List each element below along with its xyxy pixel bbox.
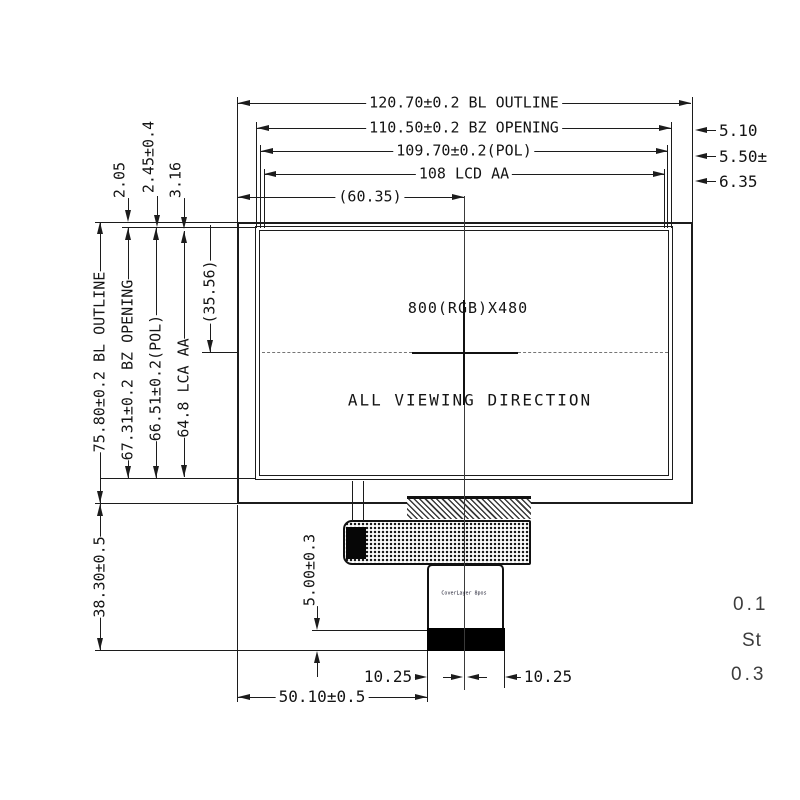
arrowhead [695,178,707,184]
arrowhead [695,127,707,133]
arrowhead [97,222,103,234]
dim-line [157,196,158,216]
arrowhead [125,466,131,478]
extension-line [667,145,668,228]
extension-line [95,222,237,223]
dim-top-offset-2-label: 2.45±0.4 [139,121,160,193]
clipped-note-3: 0.3 [731,664,766,686]
extension-line [237,505,238,702]
dim-connector-depth-label: 5.00±0.3 [300,534,321,606]
arrowhead [695,153,707,159]
arrowhead [415,674,427,680]
fpc-tail-tab [427,564,504,630]
dim-pol-height-label: 66.51±0.2(POL) [146,315,167,441]
dim-half-height-label: (35.56) [200,260,221,323]
arrowhead [181,465,187,477]
dim-lcd-aa-width-label: 108 LCD AA [416,167,512,182]
dim-top-offset-1-label: 2.05 [110,162,131,198]
dim-half-width-label: (60.35) [335,190,404,205]
dim-line [317,663,318,677]
arrowhead [314,651,320,663]
extension-line [504,651,505,688]
dim-line [707,130,716,131]
arrowhead [264,171,276,177]
fpc-hatch-strip [407,496,531,519]
fpc-wire-line [363,481,364,521]
dim-1025-right-label: 10.25 [521,669,575,685]
drawing-canvas: 120.70±0.2 BL OUTLINE 110.50±0.2 BZ OPEN… [0,0,800,800]
dim-line [707,156,716,157]
arrowhead [125,228,131,240]
arrowhead [238,694,250,700]
dim-top-offset-3-label: 3.16 [166,162,187,198]
dim-bl-outline-height-label: 75.80±0.2 BL OUTLINE [90,272,111,453]
arrowhead [314,618,320,630]
dim-pol-width-label: 109.70±0.2(POL) [393,144,534,159]
dim-bottom-width-label: 50.10±0.5 [276,689,369,705]
extension-line [692,97,693,222]
clipped-note-2: St [742,630,762,652]
arrowhead [238,194,250,200]
arrowhead [467,674,479,680]
panel-resolution-text: 800(RGB)X480 [408,299,528,317]
extension-line [260,145,261,228]
extension-line [264,169,265,228]
arrowhead [97,638,103,650]
arrowhead [679,100,691,106]
viewing-direction-text: ALL VIEWING DIRECTION [348,391,592,410]
arrowhead [505,674,517,680]
dim-right-2-label: 5.50± [719,149,767,165]
extension-line [95,503,237,504]
dim-lca-aa-height-label: 64.8 LCA AA [174,338,195,437]
arrowhead [97,491,103,503]
arrowhead [181,217,187,229]
extension-line [100,478,256,479]
arrowhead [181,231,187,243]
extension-line [202,352,238,353]
extension-line [312,630,427,631]
dim-bz-opening-width-label: 110.50±0.2 BZ OPENING [366,121,562,136]
fpc-end-black-bar [427,628,505,651]
dim-right-1-label: 5.10 [719,123,758,139]
horizontal-centerline [262,352,412,353]
center-cross-v [463,300,465,405]
fpc-connector-block [346,527,366,559]
arrowhead [97,504,103,516]
dim-line [184,196,185,218]
arrowhead [154,215,160,227]
arrowhead [659,125,671,131]
extension-line [237,97,238,222]
arrowhead [125,210,131,222]
extension-line [95,650,427,651]
arrowhead [451,674,463,680]
dim-bz-opening-height-label: 67.31±0.2 BZ OPENING [118,280,139,461]
dim-bottom-total-label: 38.30±0.5 [90,536,111,617]
extension-line [427,651,428,702]
vertical-centerline [464,196,465,690]
arrowhead [153,228,159,240]
arrowhead [415,694,427,700]
arrowhead [656,148,668,154]
fpc-body [343,520,531,565]
arrowhead [452,194,464,200]
arrowhead [207,340,213,352]
arrowhead [153,466,159,478]
extension-line [664,169,665,228]
dim-line [707,181,716,182]
dim-1025-left-label: 10.25 [361,669,415,685]
extension-line [256,122,257,228]
arrowhead [238,100,250,106]
center-cross-h [412,352,518,354]
dim-line [128,196,129,211]
dim-line [478,677,487,678]
extension-line [122,227,256,228]
extension-line [671,122,672,228]
horizontal-centerline [518,352,668,353]
dim-bl-outline-width-label: 120.70±0.2 BL OUTLINE [366,96,562,111]
arrowhead [261,148,273,154]
fpc-wire-line [352,481,353,521]
clipped-note-1: 0.1 [733,594,768,616]
arrowhead [653,171,665,177]
arrowhead [257,125,269,131]
dim-right-3-label: 6.35 [719,174,758,190]
fpc-tab-marking: CoverLayer 8pos [441,592,486,597]
